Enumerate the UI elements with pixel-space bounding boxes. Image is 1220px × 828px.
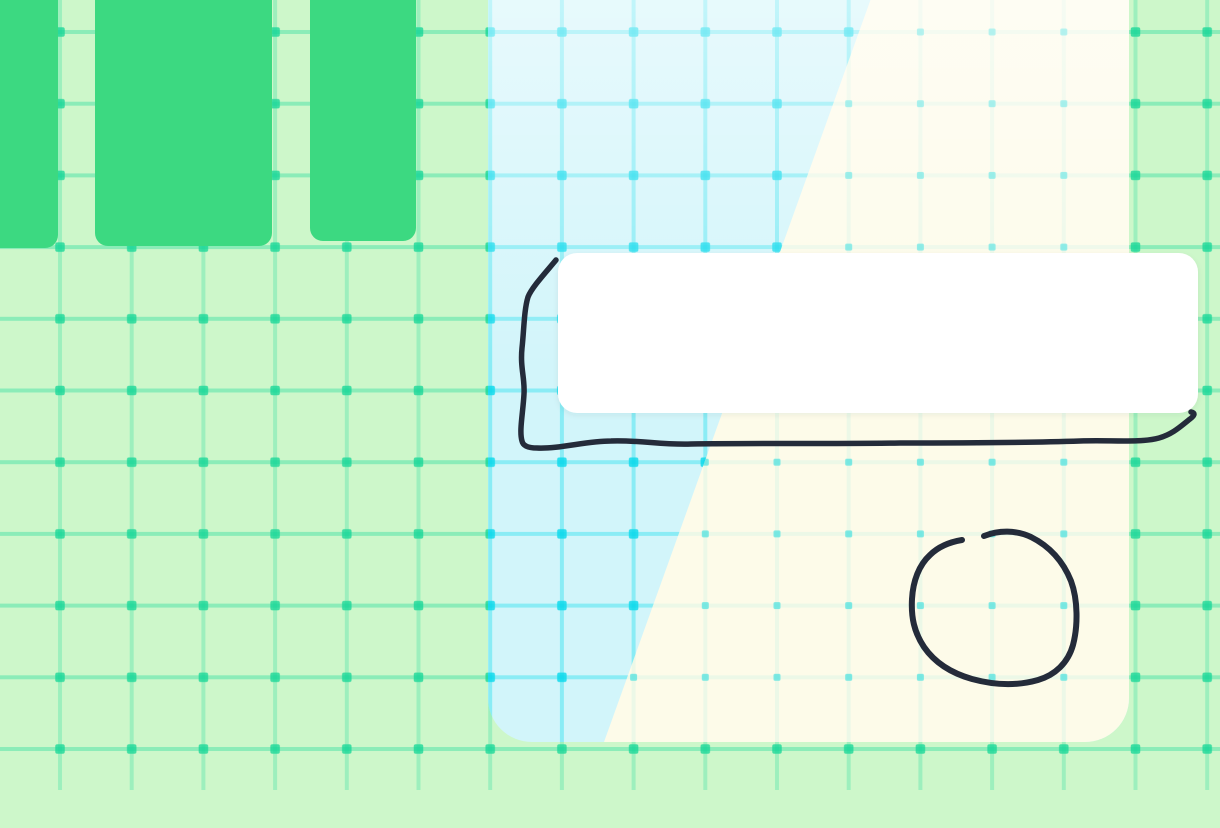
note-card[interactable] <box>558 253 1198 413</box>
green-block-1[interactable] <box>0 0 58 248</box>
whiteboard-canvas <box>0 0 1220 828</box>
green-block-2[interactable] <box>95 0 272 246</box>
green-block-3[interactable] <box>310 0 416 241</box>
